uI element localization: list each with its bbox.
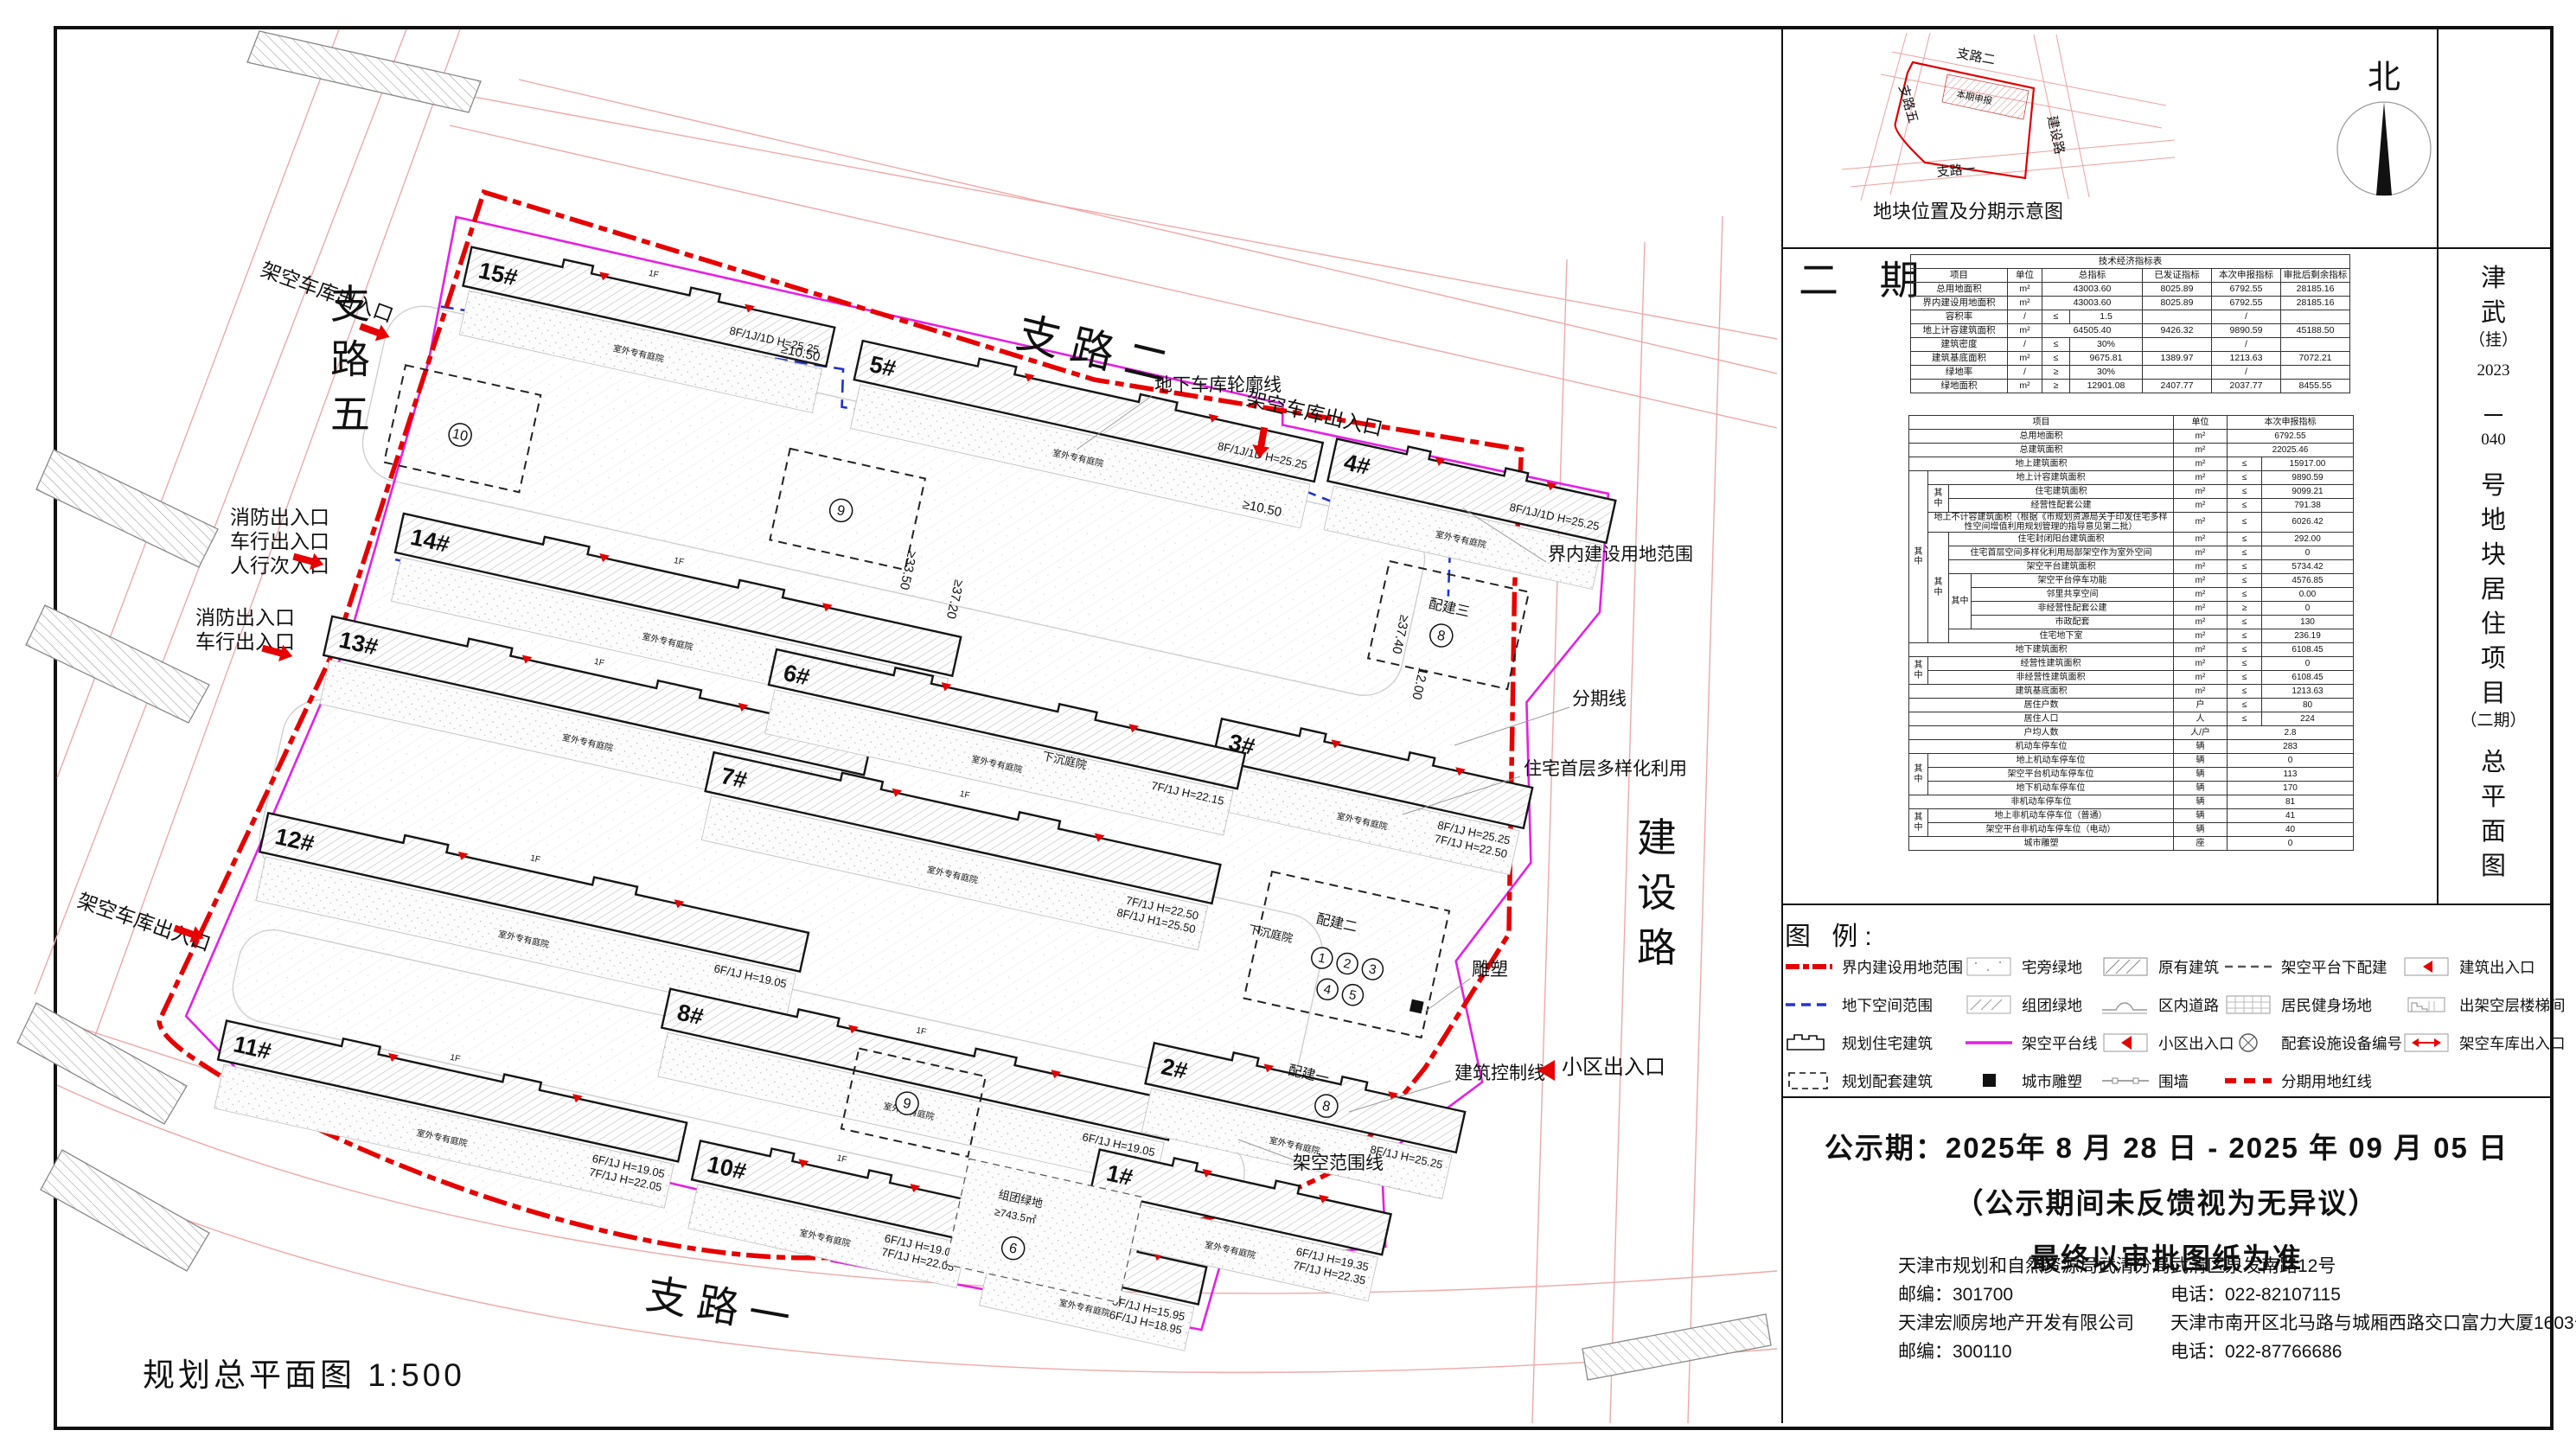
legend-item-label: 架空车库出入口: [2459, 1032, 2566, 1054]
table-cell: 建筑基底面积: [1911, 352, 2008, 366]
table-cell: ≤: [2228, 657, 2262, 671]
table-cell: 2037.77: [2212, 380, 2281, 393]
table-cell: 审批后剩余指标: [2281, 269, 2350, 283]
table-cell: 9890.59: [2212, 324, 2281, 338]
building-label: 7#: [719, 763, 750, 794]
table-cell: 其中: [1949, 574, 1972, 629]
legend-icon: [2222, 993, 2274, 1017]
table-cell: 6792.55: [2212, 283, 2281, 297]
table-cell: ≤: [2228, 685, 2262, 699]
table-cell: 已发证指标: [2143, 269, 2212, 283]
table-cell: m²: [2174, 485, 2228, 499]
table-cell: 41: [2228, 809, 2354, 823]
table-cell: 12901.08: [2070, 380, 2143, 393]
city-sculpture: [1409, 999, 1424, 1014]
table-cell: 架空平台机动车停车位: [1928, 768, 2174, 782]
table-cell: ≤: [2228, 643, 2262, 657]
table-cell: 经营性配套公建: [1949, 499, 2174, 513]
contact-address: 武清区泉发南路12号: [2170, 1252, 2576, 1280]
legend-item-label: 区内道路: [2158, 994, 2219, 1016]
table-cell: ≤: [2228, 629, 2262, 643]
table-cell: /: [2008, 366, 2042, 380]
table-cell: m²: [2008, 283, 2042, 297]
table-cell: 地上计容建筑面积: [1928, 471, 2174, 485]
legend-icon: [2400, 1031, 2452, 1055]
table-cell: [2281, 366, 2350, 380]
table-cell: 项目: [1909, 416, 2174, 430]
table-cell: 总用地面积: [1909, 430, 2174, 444]
table-cell: 81: [2228, 795, 2354, 809]
table-cell: 总用地面积: [1911, 283, 2008, 297]
title-token: 项: [2437, 638, 2550, 674]
table-cell: 住宅建筑面积: [1949, 485, 2174, 499]
table-cell: [2143, 338, 2212, 352]
legend-item: 界内建设用地范围: [1783, 949, 1963, 984]
table-cell: 项目: [1911, 269, 2008, 283]
table-cell: 架空平台建筑面积: [1949, 560, 2174, 574]
table-cell: 其中: [1909, 809, 1928, 837]
table-cell: [2281, 310, 2350, 324]
callout-boundary: 界内建设用地范围: [1548, 545, 1693, 565]
table-cell: 64505.40: [2042, 324, 2143, 338]
table-cell: 236.19: [2262, 629, 2354, 643]
legend-item-label: 组团绿地: [2022, 994, 2082, 1016]
table-cell: ≤: [2042, 352, 2070, 366]
entrance-community: 小区出入口: [1562, 1056, 1665, 1079]
building-label: 5#: [867, 351, 898, 382]
table-cell: 非经营性建筑面积: [1928, 671, 2174, 685]
notice-line-2: （公示期间未反馈视为无异议）: [1783, 1176, 2550, 1231]
table-cell: 城市雕塑: [1909, 837, 2174, 851]
contact-phone-2: 电话：022-87766686: [2170, 1338, 2576, 1366]
table-cell: 辆: [2174, 809, 2228, 823]
legend-icon: [1963, 1031, 2015, 1055]
legend-item: 城市雕塑: [1963, 1063, 2082, 1098]
table-cell: 43003.60: [2042, 297, 2143, 310]
table-cell: 住宅首层空间多样化利用局部架空作为室外空间: [1949, 546, 2174, 560]
table-cell: 4576.85: [2262, 574, 2354, 588]
title-token: 目: [2437, 673, 2550, 709]
legend-item-label: 城市雕塑: [2022, 1070, 2082, 1092]
table-cell: ≤: [2228, 671, 2262, 685]
table-cell: 1389.97: [2143, 352, 2212, 366]
table-cell: 非机动车停车位: [1909, 795, 2174, 809]
contact-right-column: 武清区泉发南路12号 电话：022-82107115 天津市南开区北马路与城厢西…: [2170, 1252, 2576, 1366]
table-cell: 15917.00: [2262, 457, 2354, 471]
legend-icon: [1963, 1069, 2015, 1093]
legend-icon: [2222, 1031, 2274, 1055]
legend-icon: [2100, 1069, 2151, 1093]
legend-item: 地下空间范围: [1783, 987, 1933, 1022]
title-strip: 津武（挂）2023－040号地块居住项目（二期）总平面图: [2437, 26, 2550, 904]
table-cell: 6108.45: [2262, 671, 2354, 685]
title-token: 号: [2437, 465, 2550, 501]
title-token: 040: [2437, 431, 2550, 450]
table-cell: m²: [2174, 685, 2228, 699]
table-cell: 2.8: [2228, 726, 2354, 740]
legend-item-label: 原有建筑: [2158, 956, 2219, 978]
table-cell: m²: [2174, 629, 2228, 643]
legend-item: 居民健身场地: [2222, 987, 2372, 1022]
title-token: －: [2437, 396, 2550, 432]
table-cell: 辆: [2174, 782, 2228, 795]
legend-icon: [1963, 993, 2015, 1017]
legend-item-label: 地下空间范围: [1842, 994, 1933, 1016]
building-label: 6#: [781, 660, 812, 691]
table-cell: /: [2008, 338, 2042, 352]
title-token: 总: [2437, 742, 2550, 778]
contact-zip-2: 邮编：300110: [1898, 1338, 2170, 1366]
title-token: 图: [2437, 846, 2550, 882]
table-cell: 辆: [2174, 823, 2228, 837]
table-cell: 居住人口: [1909, 712, 2174, 726]
contact-zip: 邮编：301700: [1898, 1280, 2170, 1309]
table-cell: 地上不计容建筑面积（根据《市规划资源局关于印发住宅多样性空间增值利用规划管理的指…: [1928, 513, 2174, 533]
table-cell: m²: [2174, 513, 2228, 533]
legend-item: 架空平台下配建: [2222, 949, 2387, 984]
table-cell: 地上非机动车停车位（普通）: [1928, 809, 2174, 823]
contact-phone: 电话：022-82107115: [2170, 1280, 2576, 1309]
legend-item-label: 界内建设用地范围: [1842, 956, 1963, 978]
table-cell: ≤: [2228, 616, 2262, 629]
table-cell: 其中: [1928, 533, 1949, 643]
callout-phase-line: 分期线: [1572, 689, 1627, 709]
table-cell: 市政配套: [1972, 616, 2174, 629]
road-label-e: 建设路: [1637, 815, 1677, 970]
table-cell: 283: [2228, 740, 2354, 754]
table-cell: 建筑密度: [1911, 338, 2008, 352]
table-cell: 辆: [2174, 795, 2228, 809]
legend-item-label: 宅旁绿地: [2022, 956, 2082, 978]
table-cell: m²: [2008, 297, 2042, 310]
table-cell: 本次申报指标: [2228, 416, 2354, 430]
legend-icon: [1783, 1069, 1835, 1093]
table-cell: m²: [2174, 574, 2228, 588]
table-cell: 8025.89: [2143, 283, 2212, 297]
table-cell: 机动车停车位: [1909, 740, 2174, 754]
table-cell: m²: [2174, 499, 2228, 513]
table-cell: m²: [2174, 533, 2228, 546]
legend-item: 组团绿地: [1963, 987, 2082, 1022]
table-cell: 43003.60: [2042, 283, 2143, 297]
table-cell: ≤: [2042, 338, 2070, 352]
title-token: 面: [2437, 811, 2550, 847]
table-cell: 6792.55: [2212, 297, 2281, 310]
table-cell: 30%: [2070, 366, 2143, 380]
legend-item: 宅旁绿地: [1963, 949, 2082, 984]
table-cell: 住宅地下室: [1949, 629, 2174, 643]
table-cell: 9426.32: [2143, 324, 2212, 338]
table-cell: 5734.42: [2262, 560, 2354, 574]
table-cell: 技术经济指标表: [1911, 255, 2350, 269]
callout-control-line: 建筑控制线: [1454, 1063, 1545, 1083]
table-cell: 130: [2262, 616, 2354, 629]
legend-item-label: 规划住宅建筑: [1842, 1032, 1933, 1054]
contact-org: 天津市规划和自然资源局武清分局: [1898, 1252, 2170, 1280]
table-cell: ≥: [2042, 366, 2070, 380]
legend-heading: 图 例:: [1785, 915, 1879, 953]
legend-icon: [1783, 993, 1835, 1017]
legend-icon: [2400, 955, 2452, 979]
table-cell: m²: [2174, 643, 2228, 657]
table-cell: 绿地率: [1911, 366, 2008, 380]
legend-icon: [1783, 1031, 1835, 1055]
table-cell: 绿地面积: [1911, 380, 2008, 393]
table-cell: 9890.59: [2262, 471, 2354, 485]
legend-item-label: 规划配套建筑: [1842, 1070, 1933, 1092]
legend-item: 区内道路: [2100, 987, 2219, 1022]
road-label-s: 支路一: [642, 1272, 803, 1344]
table-cell: m²: [2008, 324, 2042, 338]
entrance-fire2: 消防出入口: [195, 606, 295, 629]
table-cell: ≤: [2228, 574, 2262, 588]
table-cell: ≤: [2228, 546, 2262, 560]
table-cell: 地上建筑面积: [1909, 457, 2174, 471]
table-cell: 户均人数: [1909, 726, 2174, 740]
legend-item-label: 架空平台下配建: [2281, 956, 2387, 978]
table-cell: 辆: [2174, 754, 2228, 768]
table-cell: ≤: [2228, 699, 2262, 712]
table-cell: 界内建设用地面积: [1911, 297, 2008, 310]
table-cell: m²: [2174, 671, 2228, 685]
entrance-vehicle: 车行出入口: [230, 530, 329, 552]
table-cell: 辆: [2174, 768, 2228, 782]
north-label: 北: [2368, 60, 2400, 96]
table-cell: ≤: [2228, 712, 2262, 726]
inset-road-e: 建设路: [2044, 114, 2067, 156]
title-token: 居: [2437, 569, 2550, 605]
entrance-garage-tl: 架空车库出入口: [258, 258, 396, 326]
legend-item: 架空车库出入口: [2400, 1025, 2566, 1060]
legend-icon: [1963, 955, 2015, 979]
table-cell: ≤: [2228, 457, 2262, 471]
legend-item: 配套设施设备编号: [2222, 1025, 2402, 1060]
table-cell: 80: [2262, 699, 2354, 712]
table-cell: 40: [2228, 823, 2354, 837]
table-cell: [2143, 366, 2212, 380]
legend-item: 围墙: [2100, 1063, 2189, 1098]
facility-number: 10: [451, 426, 470, 444]
legend-icon: [2100, 955, 2151, 979]
table-cell: /: [2212, 338, 2281, 352]
table-cell: m²: [2174, 616, 2228, 629]
legend-icon: [2222, 955, 2274, 979]
scale-label: 规划总平面图 1:500: [143, 1349, 465, 1395]
table-cell: 座: [2174, 837, 2228, 851]
inset-caption: 地块位置及分期示意图: [1873, 201, 2063, 222]
table-cell: m²: [2174, 602, 2228, 616]
table-cell: m²: [2174, 471, 2228, 485]
table-cell: 架空平台非机动车停车位（电动）: [1928, 823, 2174, 837]
callout-diverse-use: 住宅首层多样化利用: [1524, 759, 1687, 779]
table-cell: 1213.63: [2262, 685, 2354, 699]
table-cell: 总建筑面积: [1909, 444, 2174, 457]
table-cell: 经营性建筑面积: [1928, 657, 2174, 671]
title-token: 2023: [2437, 361, 2550, 380]
table-cell: /: [2212, 366, 2281, 380]
legend-icon: [2100, 1031, 2151, 1055]
table-cell: 0: [2228, 754, 2354, 768]
table-cell: m²: [2174, 546, 2228, 560]
building-label: 2#: [1159, 1053, 1190, 1084]
table-cell: 容积率: [1911, 310, 2008, 324]
table-cell: ≤: [2228, 533, 2262, 546]
entrance-fire: 消防出入口: [230, 506, 329, 528]
table-cell: /: [2008, 310, 2042, 324]
legend-item: 建筑出入口: [2400, 949, 2535, 984]
table-cell: 6792.55: [2228, 430, 2354, 444]
legend-item: 规划住宅建筑: [1783, 1025, 1933, 1060]
table-cell: 地下建筑面积: [1909, 643, 2174, 657]
table-cell: 其中: [1909, 754, 1928, 795]
legend-item-label: 建筑出入口: [2459, 956, 2535, 978]
title-token: 武: [2437, 292, 2550, 329]
table-cell: 地上计容建筑面积: [1911, 324, 2008, 338]
table-cell: ≥: [2042, 380, 2070, 393]
table-cell: 28185.16: [2281, 283, 2350, 297]
legend-item: 小区出入口: [2100, 1025, 2234, 1060]
table-cell: 45188.50: [2281, 324, 2350, 338]
legend-item: 出架空层楼梯间: [2400, 987, 2566, 1022]
table-cell: 其中: [1909, 471, 1928, 643]
legend-item-label: 分期用地红线: [2281, 1070, 2372, 1092]
inset-road-n: 支路二: [1955, 46, 1996, 67]
legend-item: 架空平台线: [1963, 1025, 2098, 1060]
table-cell: 28185.16: [2281, 297, 2350, 310]
building-label: 4#: [1341, 449, 1372, 480]
table-cell: 其中: [1928, 485, 1949, 513]
notice-line-1: 公示期：2025年 8 月 28 日 - 2025 年 09 月 05 日: [1783, 1121, 2550, 1176]
drawing-sheet: 室外专有庭院15#8F/1J/1D H=25.251F室外专有庭院5#8F/1J…: [0, 0, 2576, 1456]
table-cell: 9675.81: [2070, 352, 2143, 366]
north-needle: [2376, 102, 2392, 195]
table-cell: 辆: [2174, 740, 2228, 754]
table-cell: 地下机动车停车位: [1928, 782, 2174, 795]
building-label: 8#: [674, 999, 706, 1031]
table-cell: ≤: [2228, 499, 2262, 513]
title-token: 地: [2437, 500, 2550, 536]
legend-item-label: 出架空层楼梯间: [2459, 994, 2566, 1016]
contact-left-column: 天津市规划和自然资源局武清分局 邮编：301700 天津宏顺房地产开发有限公司 …: [1898, 1252, 2170, 1366]
table-cell: 总指标: [2042, 269, 2143, 283]
table-cell: 单位: [2174, 416, 2228, 430]
table-cell: m²: [2174, 444, 2228, 457]
table-cell: 0: [2228, 837, 2354, 851]
table-cell: 8455.55: [2281, 380, 2350, 393]
table-cell: 224: [2262, 712, 2354, 726]
title-token: 平: [2437, 776, 2550, 813]
legend-icon: [1783, 955, 1835, 979]
table-cell: ≤: [2228, 513, 2262, 533]
table-cell: ≤: [2228, 485, 2262, 499]
table-cell: 非经营性配套公建: [1972, 602, 2174, 616]
table-cell: 住宅封闭阳台建筑面积: [1949, 533, 2174, 546]
table-cell: 113: [2228, 768, 2354, 782]
table-cell: 0: [2262, 602, 2354, 616]
table-cell: 人/户: [2174, 726, 2228, 740]
table-cell: 居住户数: [1909, 699, 2174, 712]
table-cell: ≤: [2228, 588, 2262, 602]
table-cell: 0: [2262, 657, 2354, 671]
table-cell: /: [2212, 310, 2281, 324]
building-label: 1#: [1104, 1159, 1135, 1191]
table-cell: 170: [2228, 782, 2354, 795]
title-token: （二期）: [2437, 707, 2550, 731]
callout-sculpture: 雕塑: [1472, 960, 1508, 980]
table-cell: m²: [2008, 352, 2042, 366]
legend-item-label: 架空平台线: [2022, 1032, 2098, 1054]
table-cell: 22025.46: [2228, 444, 2354, 457]
table-cell: ≤: [2228, 471, 2262, 485]
contact-address-2: 天津市南开区北马路与城厢西路交口富力大厦1603号: [2170, 1309, 2576, 1338]
table-cell: 1.5: [2070, 310, 2143, 324]
table-cell: ≥: [2228, 602, 2262, 616]
north-arrow: 北: [2337, 60, 2431, 195]
legend-item: 原有建筑: [2100, 949, 2219, 984]
title-token: 津: [2437, 258, 2550, 294]
table-cell: 本次申报指标: [2212, 269, 2281, 283]
legend-item-label: 围墙: [2158, 1070, 2189, 1092]
inset-road-s: 支路一: [1936, 162, 1976, 180]
table-cell: 30%: [2070, 338, 2143, 352]
table-cell: 7072.21: [2281, 352, 2350, 366]
table-cell: 地上机动车停车位: [1928, 754, 2174, 768]
callout-platform-range: 架空范围线: [1293, 1153, 1384, 1173]
table-cell: 2407.77: [2143, 380, 2212, 393]
legend-item: 分期用地红线: [2222, 1063, 2372, 1098]
table-cell: 建筑基底面积: [1909, 685, 2174, 699]
table-cell: 6026.42: [2262, 513, 2354, 533]
table-cell: 9099.21: [2262, 485, 2354, 499]
table-cell: m²: [2174, 457, 2228, 471]
table-cell: 单位: [2008, 269, 2042, 283]
legend-item-label: 居民健身场地: [2281, 994, 2372, 1016]
table-cell: 户: [2174, 699, 2228, 712]
table-cell: 1213.63: [2212, 352, 2281, 366]
table-cell: m²: [2174, 588, 2228, 602]
title-token: 块: [2437, 534, 2550, 571]
table-cell: 791.38: [2262, 499, 2354, 513]
indicator-table-phase: 项目单位本次申报指标总用地面积m²6792.55总建筑面积m²22025.46地…: [1908, 415, 2354, 851]
indicator-table-main: 技术经济指标表项目单位总指标已发证指标本次申报指标审批后剩余指标总用地面积m²4…: [1910, 254, 2350, 393]
contact-company: 天津宏顺房地产开发有限公司: [1898, 1309, 2170, 1338]
table-cell: [2143, 310, 2212, 324]
table-cell: m²: [2174, 430, 2228, 444]
table-cell: [2281, 338, 2350, 352]
table-cell: m²: [2174, 560, 2228, 574]
legend-icon: [2222, 1069, 2274, 1093]
table-cell: 0: [2262, 546, 2354, 560]
inset-diagram: 本期申报 支路二 支路五 建设路 支路一 地块位置及分期示意图: [1842, 33, 2175, 222]
table-cell: m²: [2174, 657, 2228, 671]
legend-icon: [2400, 993, 2452, 1017]
table-cell: 架空平台停车功能: [1972, 574, 2174, 588]
table-cell: m²: [2008, 380, 2042, 393]
table-cell: 0.00: [2262, 588, 2354, 602]
table-cell: ≤: [2042, 310, 2070, 324]
table-cell: 其中: [1909, 657, 1928, 685]
legend-item-label: 配套设施设备编号: [2281, 1032, 2402, 1054]
table-cell: 人: [2174, 712, 2228, 726]
legend-icon: [2100, 993, 2151, 1017]
title-token: （挂）: [2437, 327, 2550, 350]
table-cell: 292.00: [2262, 533, 2354, 546]
title-token: 住: [2437, 603, 2550, 640]
legend-item: 规划配套建筑: [1783, 1063, 1933, 1098]
table-cell: 8025.89: [2143, 297, 2212, 310]
table-cell: 6108.45: [2262, 643, 2354, 657]
table-cell: ≤: [2228, 560, 2262, 574]
